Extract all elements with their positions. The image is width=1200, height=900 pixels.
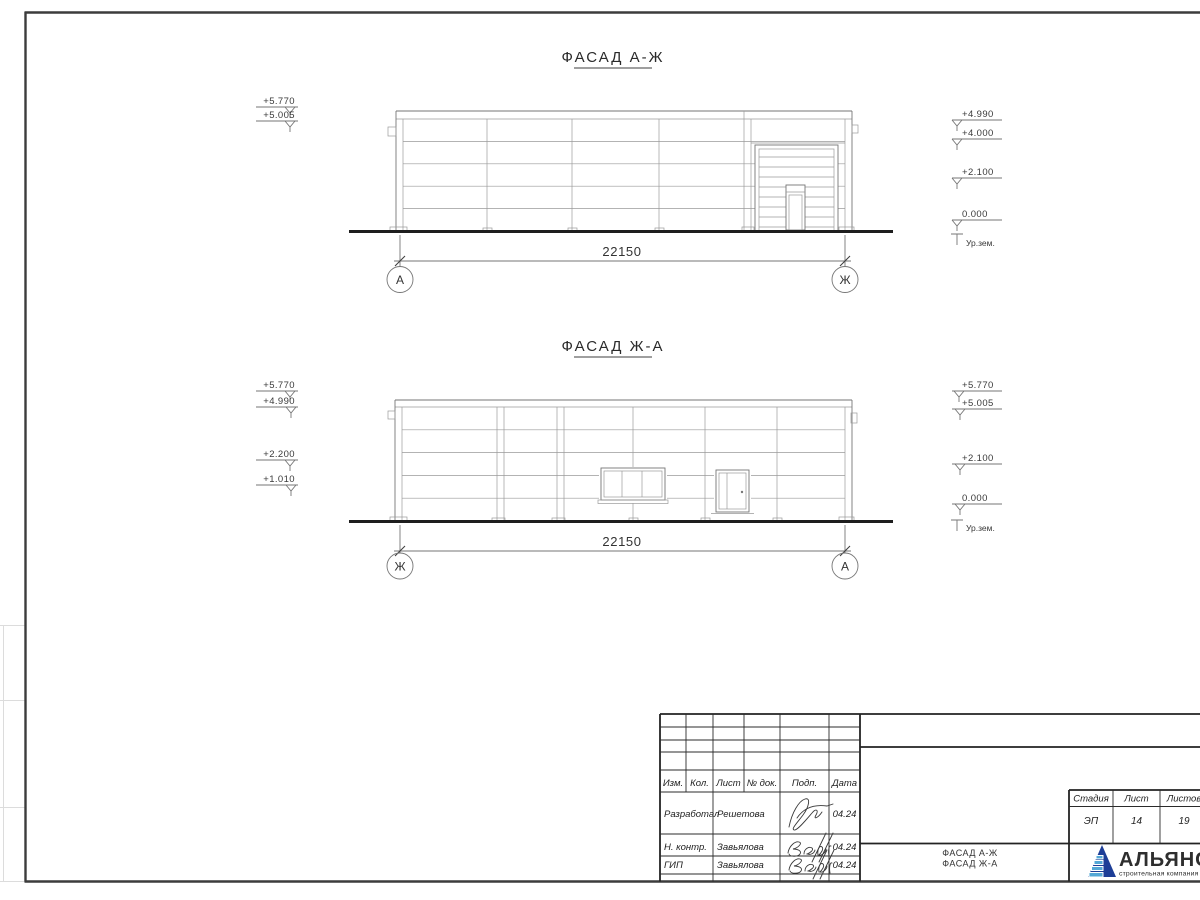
level-value: 0.000	[962, 209, 988, 220]
elevation-mark: +1.010	[256, 474, 298, 496]
logo-text: АЛЬЯНС	[1119, 849, 1200, 871]
ground-label: Ур.зем.	[966, 523, 995, 533]
facade1-levels-right: +4.990 +4.000 +2.100 0.000 Ур.зем.	[951, 109, 1002, 248]
elevation-mark: 0.000	[952, 493, 1002, 515]
facade2-levels-right: +5.770 +5.005 +2.100 0.000 Ур.зем.	[951, 380, 1002, 533]
level-value: +5.005	[263, 110, 295, 121]
row-date: 04.24	[833, 842, 857, 853]
row-date: 04.24	[833, 860, 857, 871]
dimension-value: 22150	[602, 534, 641, 549]
facade-a-zh: ФАСАД А-Ж	[256, 49, 1002, 293]
row-name: Завьялова	[717, 860, 764, 871]
col-list: Лист	[715, 778, 741, 789]
elevation-mark: 0.000	[952, 209, 1002, 231]
stage-table: Стадия Лист Листов ЭП 14 19	[1073, 794, 1200, 828]
signature-razrabotal	[789, 799, 833, 830]
elevation-mark: +5.005	[952, 398, 1002, 420]
row-name: Завьялова	[717, 842, 764, 853]
window	[598, 467, 668, 504]
level-value: +1.010	[263, 474, 295, 485]
level-value: +5.770	[962, 380, 994, 391]
elevation-mark: +4.990	[256, 396, 298, 418]
facade2-dimension: 22150 Ж А	[387, 525, 858, 579]
facade1-title: ФАСАД А-Ж	[562, 49, 665, 66]
facade-zh-a: ФАСАД Ж-А	[256, 338, 1002, 579]
level-value: +4.990	[962, 109, 994, 120]
doc-title-line1: ФАСАД А-Ж	[942, 848, 998, 858]
drawing-sheet: ФАСАД А-Ж	[0, 0, 1200, 900]
level-value: +4.000	[962, 128, 994, 139]
list-col: Лист	[1123, 794, 1149, 805]
company-logo: АЛЬЯНС строительная компания	[1088, 845, 1200, 878]
level-value: +2.200	[263, 449, 295, 460]
list-value: 14	[1131, 816, 1143, 827]
level-value: +2.100	[962, 167, 994, 178]
row-role: Разработал	[664, 809, 720, 820]
listov-col: Листов	[1166, 794, 1200, 805]
row-role: ГИП	[664, 860, 683, 871]
elevation-mark: +5.005	[256, 110, 298, 132]
axis-label: Ж	[394, 560, 405, 574]
level-value: +5.005	[962, 398, 994, 409]
elevation-mark: +2.100	[952, 167, 1002, 189]
level-value: +2.100	[962, 453, 994, 464]
entrance-door	[711, 469, 754, 514]
level-value: +4.990	[263, 396, 295, 407]
stage-col: Стадия	[1073, 794, 1109, 805]
col-kol: Кол.	[690, 778, 709, 789]
level-value: 0.000	[962, 493, 988, 504]
level-value: +5.770	[263, 96, 295, 107]
elevation-mark: +2.200	[256, 449, 298, 471]
signature-nkontr	[788, 833, 833, 862]
ground-level-mark: Ур.зем.	[951, 234, 995, 248]
col-podp: Подп.	[792, 778, 817, 789]
facade2-details	[388, 411, 857, 521]
doc-title-line2: ФАСАД Ж-А	[942, 859, 997, 869]
row-date: 04.24	[833, 809, 857, 820]
title-block: Изм. Кол. Лист № док. Подп. Дата Разрабо…	[660, 714, 1200, 882]
facade1-levels-left: +5.770 +5.005	[256, 96, 298, 132]
axis-label: А	[841, 560, 849, 574]
dimension-value: 22150	[602, 244, 641, 259]
row-name: Решетова	[717, 809, 765, 820]
sectional-gate	[755, 145, 838, 231]
level-value: +5.770	[263, 380, 295, 391]
listov-value: 19	[1178, 816, 1190, 827]
page-frame	[0, 12, 1200, 882]
col-izm: Изм.	[663, 778, 683, 789]
wicket-door	[786, 185, 805, 230]
stage-value: ЭП	[1084, 816, 1099, 827]
row-role: Н. контр.	[664, 842, 707, 853]
signature-rows: Разработал Решетова 04.24 Н. контр. Завь…	[664, 799, 856, 879]
col-data: Дата	[831, 778, 857, 789]
elevation-mark: +4.000	[952, 128, 1002, 150]
facade2-levels-left: +5.770 +4.990 +2.200 +1.010	[256, 380, 298, 496]
ground-level-mark: Ур.зем.	[951, 520, 995, 533]
axis-label: Ж	[839, 273, 850, 287]
col-ndok: № док.	[747, 778, 778, 789]
facade1-dimension: 22150 А Ж	[387, 235, 858, 293]
document-title-cell: ФАСАД А-Ж ФАСАД Ж-А	[942, 848, 998, 869]
elevation-mark: +2.100	[952, 453, 1002, 475]
axis-label: А	[396, 273, 404, 287]
facade2-title: ФАСАД Ж-А	[562, 338, 665, 355]
revision-header-row: Изм. Кол. Лист № док. Подп. Дата	[663, 778, 857, 789]
logo-subtitle: строительная компания	[1119, 871, 1199, 878]
ground-label: Ур.зем.	[966, 238, 995, 248]
